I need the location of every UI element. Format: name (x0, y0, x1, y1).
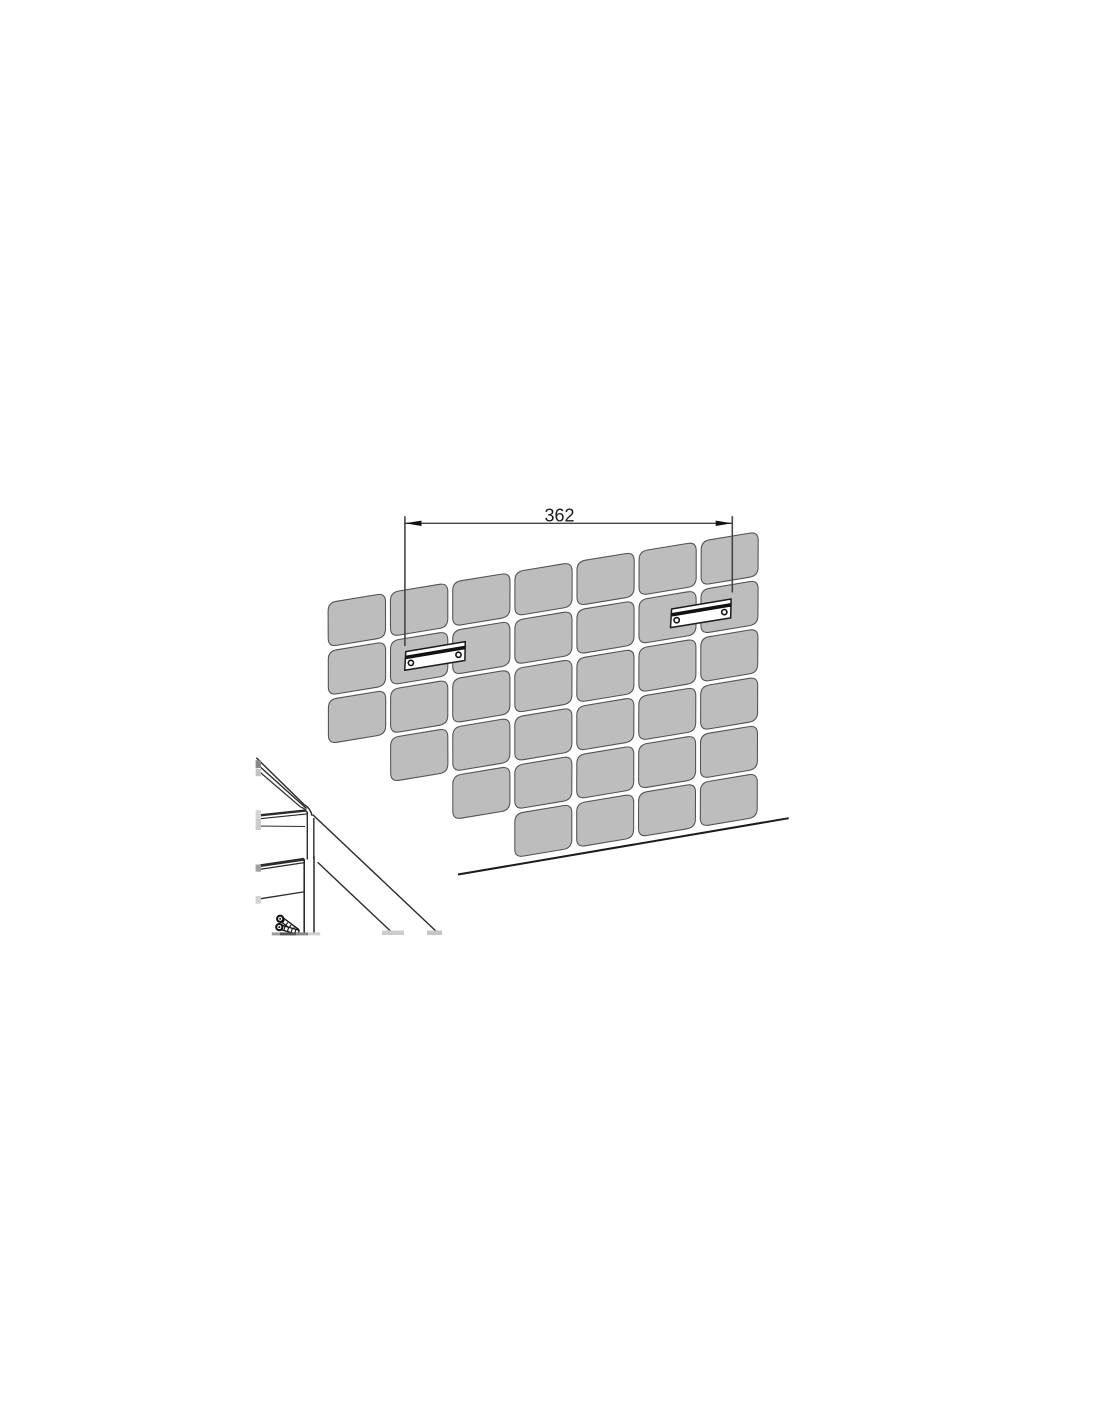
svg-text:362: 362 (544, 506, 574, 526)
